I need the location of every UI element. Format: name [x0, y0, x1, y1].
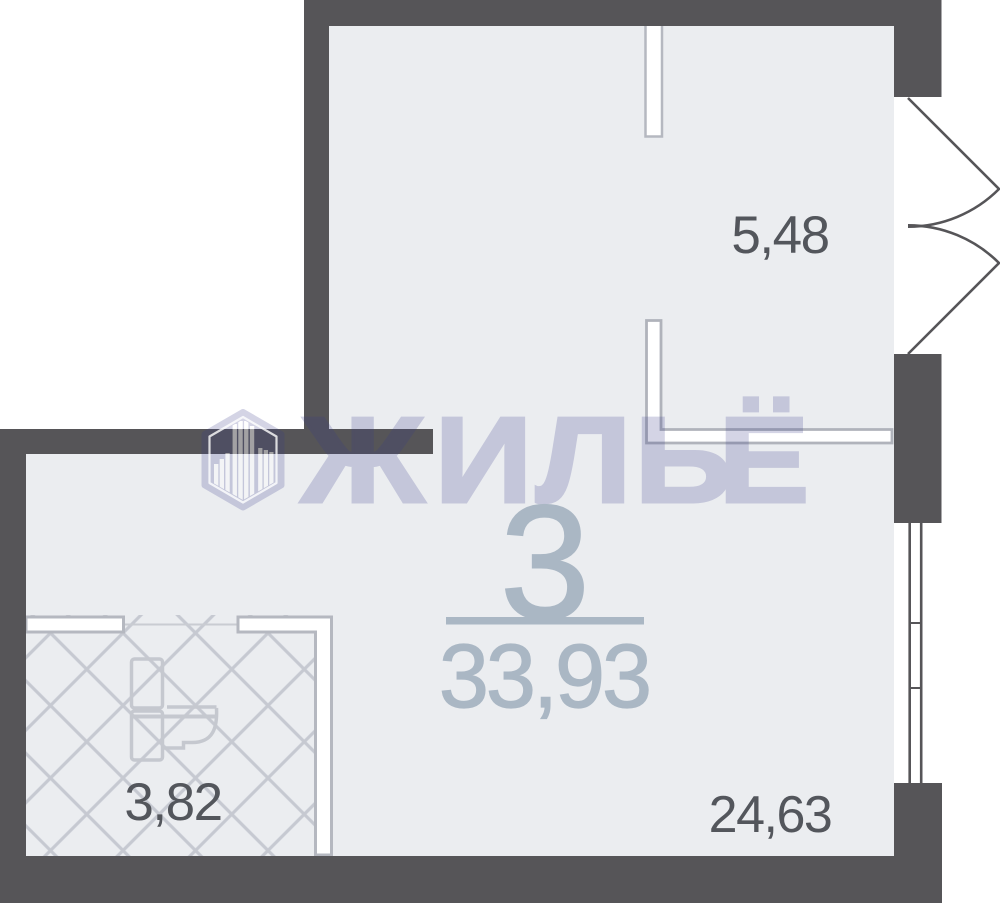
svg-text:33,93: 33,93: [439, 627, 649, 727]
svg-text:5,48: 5,48: [731, 206, 828, 265]
svg-text:3,82: 3,82: [124, 773, 221, 832]
svg-text:24,63: 24,63: [709, 786, 832, 844]
svg-text:3: 3: [500, 472, 590, 653]
